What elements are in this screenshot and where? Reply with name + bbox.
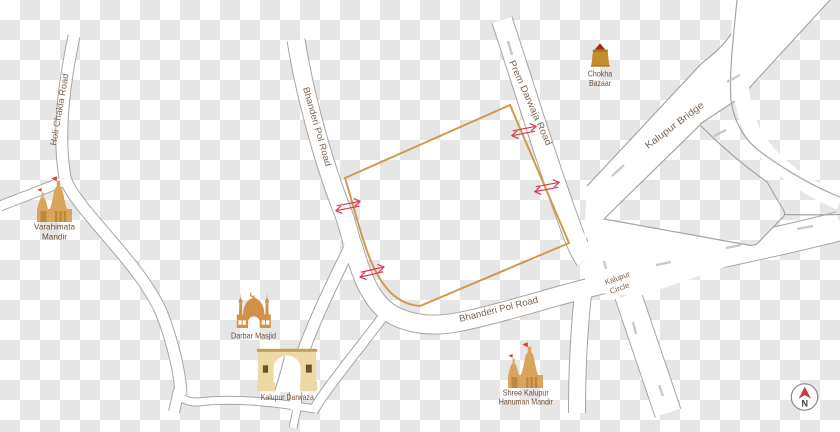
svg-text:Mandir: Mandir <box>42 233 67 242</box>
svg-text:Chokha: Chokha <box>588 70 613 79</box>
svg-text:Bazaar: Bazaar <box>589 79 611 88</box>
svg-text:Darbar Masjid: Darbar Masjid <box>231 332 276 341</box>
svg-text:Kalupur Darwaza: Kalupur Darwaza <box>261 393 314 402</box>
svg-text:Varahimata: Varahimata <box>34 223 75 232</box>
svg-text:N: N <box>802 399 809 409</box>
svg-text:Hanuman Mandir: Hanuman Mandir <box>499 397 553 406</box>
svg-text:Shree Kalupur: Shree Kalupur <box>503 388 549 397</box>
